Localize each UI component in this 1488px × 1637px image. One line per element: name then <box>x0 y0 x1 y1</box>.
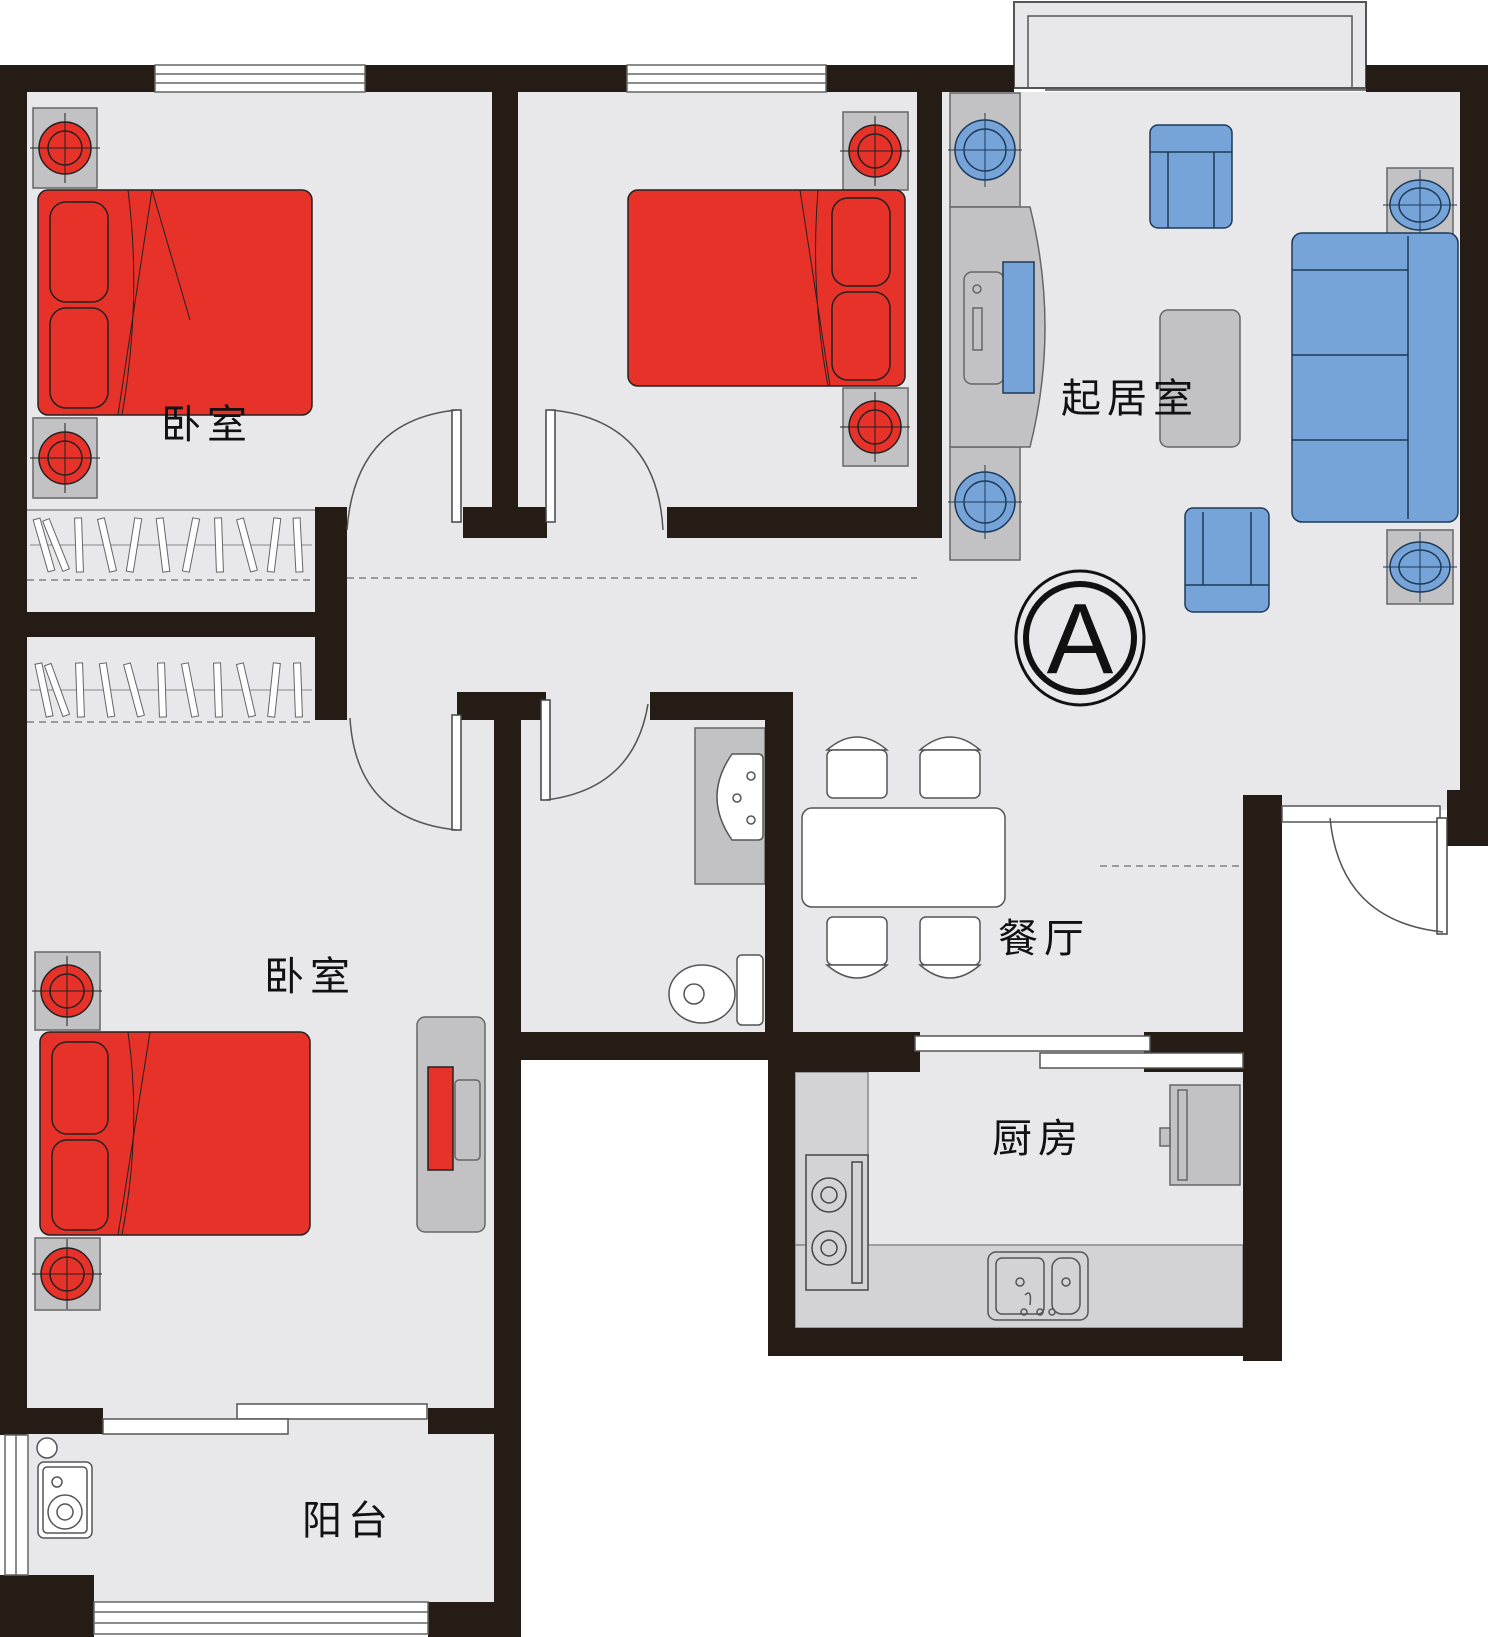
kitchen-slider-panel-2 <box>1040 1053 1243 1068</box>
wall-wardrobe-divider <box>18 612 315 637</box>
label-bedroom-top-left: 卧室 <box>161 402 253 447</box>
wall-bathroom-bottom <box>494 1032 793 1060</box>
stove <box>806 1155 868 1290</box>
wall-entry-corner <box>1447 790 1488 846</box>
balcony-slider-panel-1 <box>237 1404 427 1419</box>
wall-kitchen-right <box>1243 795 1282 1361</box>
wall-hall-left <box>315 507 347 720</box>
floor-drain <box>37 1438 57 1458</box>
dining-chair <box>827 737 887 798</box>
wall-kitchen-top-left <box>768 1032 920 1072</box>
wall-bathroom-right <box>765 692 793 1040</box>
floor-balcony <box>27 1408 494 1633</box>
bay-window-outer <box>1014 2 1366 88</box>
wall-hall-top-right <box>667 507 942 538</box>
armchair-bottom <box>1185 508 1269 612</box>
refrigerator-handle <box>1160 1128 1170 1146</box>
wall-balcony-corner-right <box>428 1602 494 1637</box>
wall-right <box>1460 65 1488 790</box>
label-bedroom-bottom-left: 卧室 <box>264 954 356 999</box>
unit-letter: A <box>1047 583 1114 695</box>
dvd-player <box>964 272 1004 384</box>
wall-long-vertical <box>494 692 521 1637</box>
wall-living-left <box>917 65 942 513</box>
wall-kitchen-bottom <box>768 1328 1243 1356</box>
bed-bottom-left <box>40 1032 310 1235</box>
kitchen-slider-panel-1 <box>915 1036 1150 1051</box>
floor-plan-page: A 卧室 卧室 起居室 餐厅 厨房 阳台 <box>0 0 1488 1637</box>
wall-kitchen-corner <box>1243 1328 1274 1361</box>
wall-balcony-top-right <box>428 1408 494 1434</box>
entry-door-head <box>1282 806 1440 822</box>
floor-plan-svg: A 卧室 卧室 起居室 餐厅 厨房 阳台 <box>0 0 1488 1637</box>
toilet-bowl <box>669 965 735 1023</box>
label-balcony: 阳台 <box>302 1498 394 1543</box>
wall-left <box>0 65 27 1435</box>
sofa <box>1292 233 1458 522</box>
label-dining-room: 餐厅 <box>998 916 1090 961</box>
window-balcony-bottom <box>94 1602 428 1634</box>
label-living-room: 起居室 <box>1061 376 1199 421</box>
tv-living <box>1003 262 1034 393</box>
window-balcony-left <box>5 1435 28 1575</box>
balcony-slider-panel-2 <box>103 1419 288 1434</box>
bathroom-sink <box>717 754 763 840</box>
dining-chair <box>920 917 980 978</box>
window-bedroom-top-left <box>155 65 365 92</box>
toilet-tank <box>737 955 763 1025</box>
wall-hall-top-block <box>463 507 547 538</box>
label-kitchen: 厨房 <box>992 1116 1084 1161</box>
wall-balcony-corner-left <box>0 1575 94 1637</box>
tv-bedroom <box>428 1067 453 1170</box>
bed-top-left <box>38 190 312 415</box>
refrigerator <box>1170 1085 1240 1185</box>
dining-chair <box>920 737 980 798</box>
dining-chair <box>827 917 887 978</box>
door-entry <box>1330 818 1447 934</box>
bed-top-middle <box>628 190 905 386</box>
wall-bedroom-divider <box>492 65 518 513</box>
wall-balcony-top-left <box>0 1408 103 1434</box>
washing-machine <box>38 1462 92 1538</box>
wall-kitchen-left <box>768 1032 795 1356</box>
dresser-component <box>455 1080 480 1160</box>
dining-table <box>802 808 1005 907</box>
armchair-top <box>1150 125 1232 228</box>
window-bedroom-top-middle <box>627 65 826 92</box>
